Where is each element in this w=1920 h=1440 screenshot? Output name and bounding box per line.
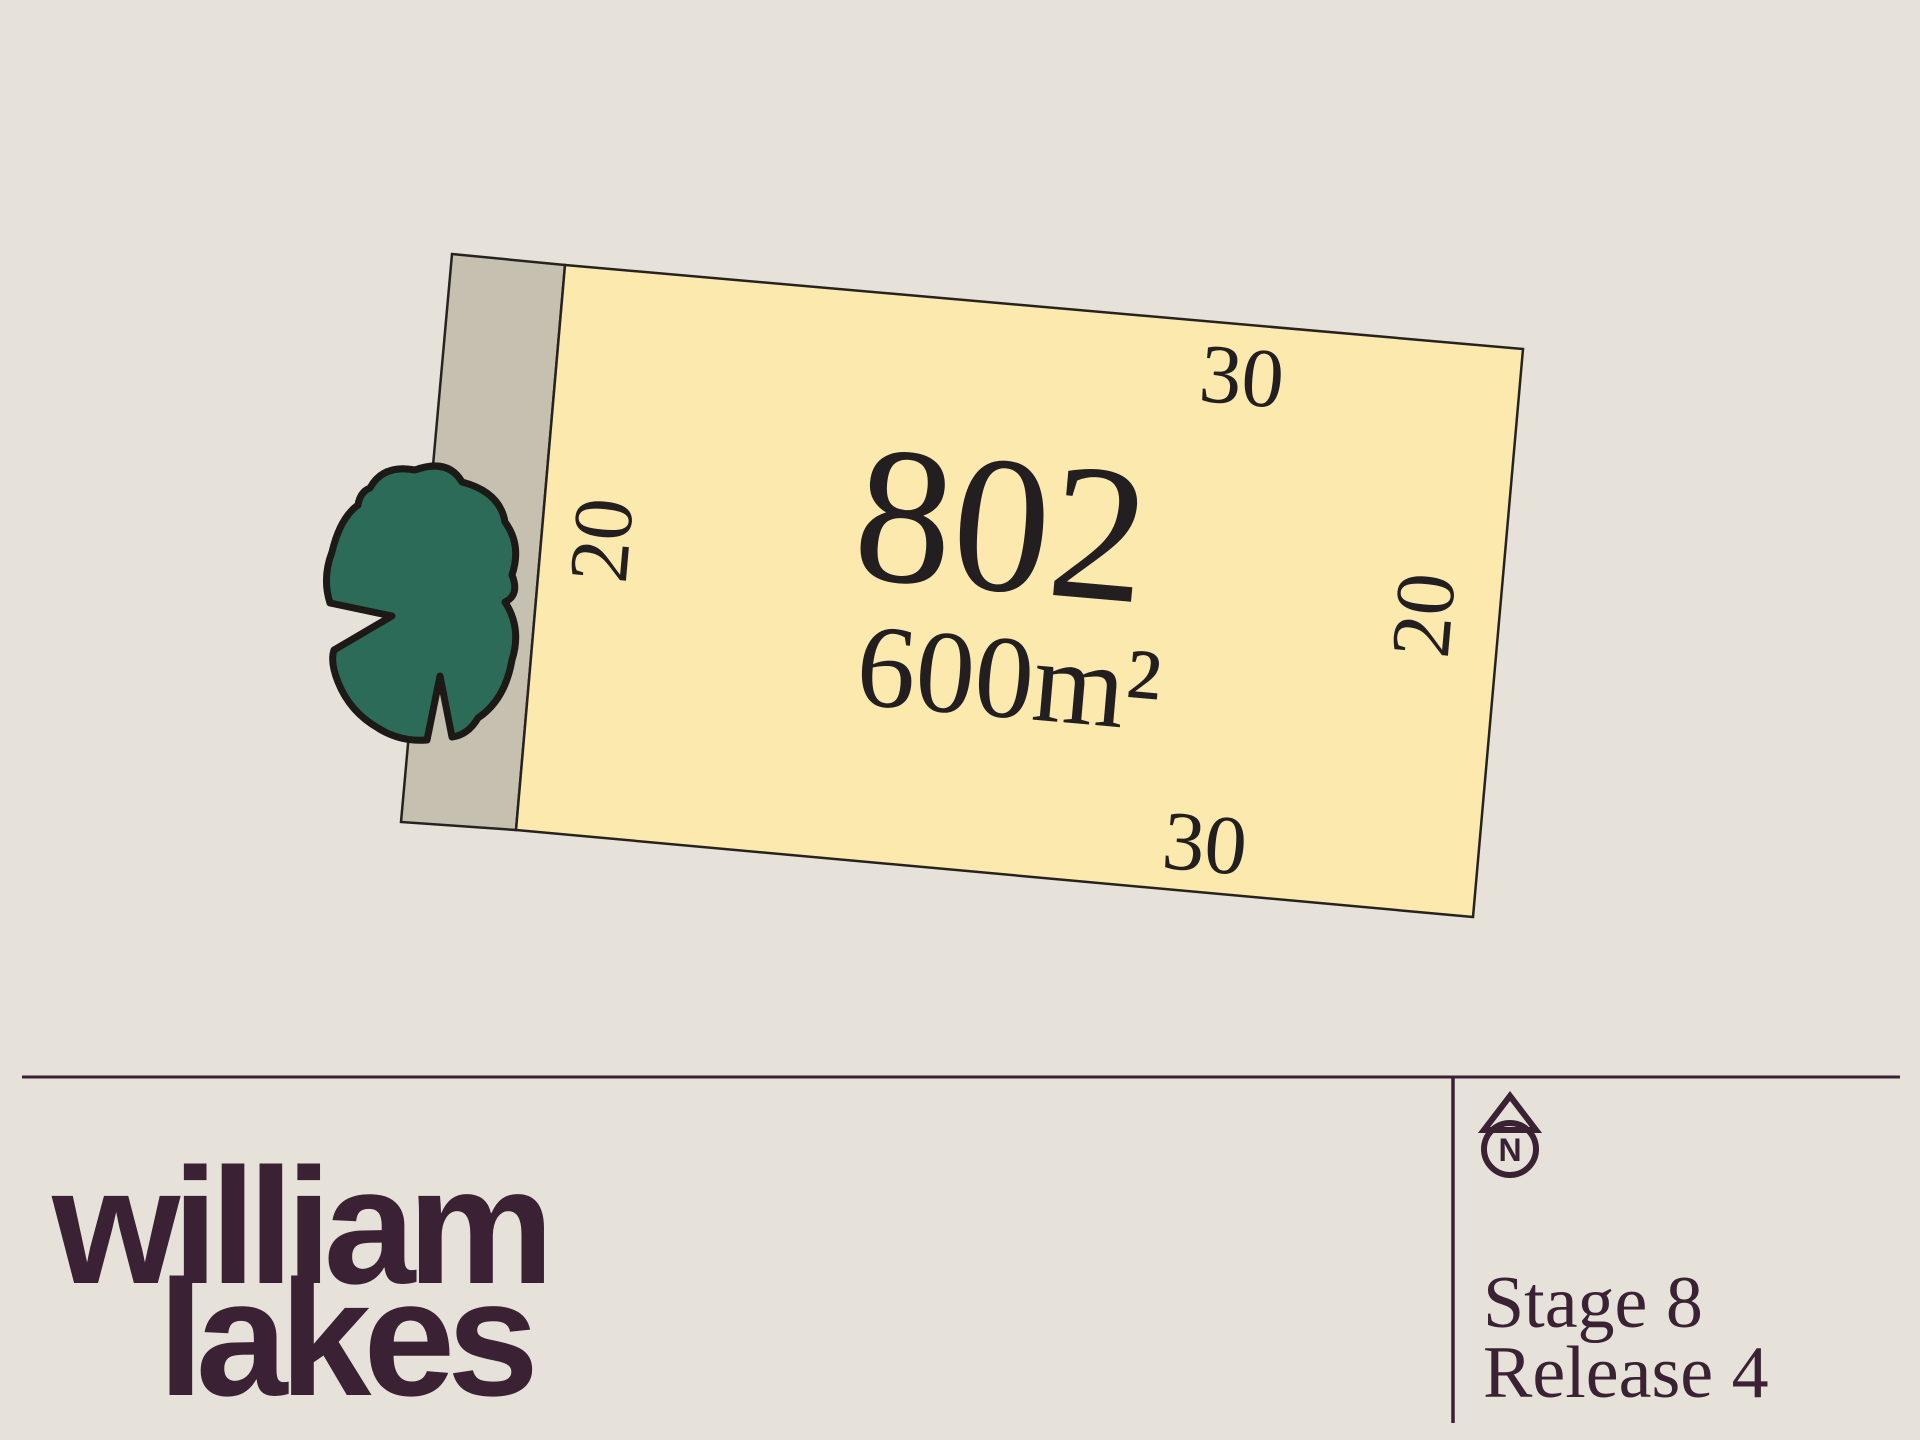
tree-canopy-icon — [326, 466, 515, 740]
north-compass-icon: N — [1484, 1096, 1536, 1175]
dimension-right: 20 — [1374, 569, 1474, 661]
logo-line2: lakes — [158, 1246, 532, 1430]
dimension-left: 20 — [552, 494, 652, 586]
lot-area-label: 600m² — [852, 599, 1166, 756]
brand-logo: william lakes — [51, 1134, 546, 1430]
dimension-top: 30 — [1196, 327, 1288, 427]
dimension-bottom: 30 — [1159, 794, 1251, 894]
north-letter: N — [1498, 1132, 1521, 1168]
release-label: Release 4 — [1483, 1332, 1769, 1414]
lot-plan-canvas: 802 600m² 30 30 20 20 N william lakes St… — [0, 0, 1920, 1440]
stage-release-block: Stage 8 Release 4 — [1483, 1262, 1769, 1414]
